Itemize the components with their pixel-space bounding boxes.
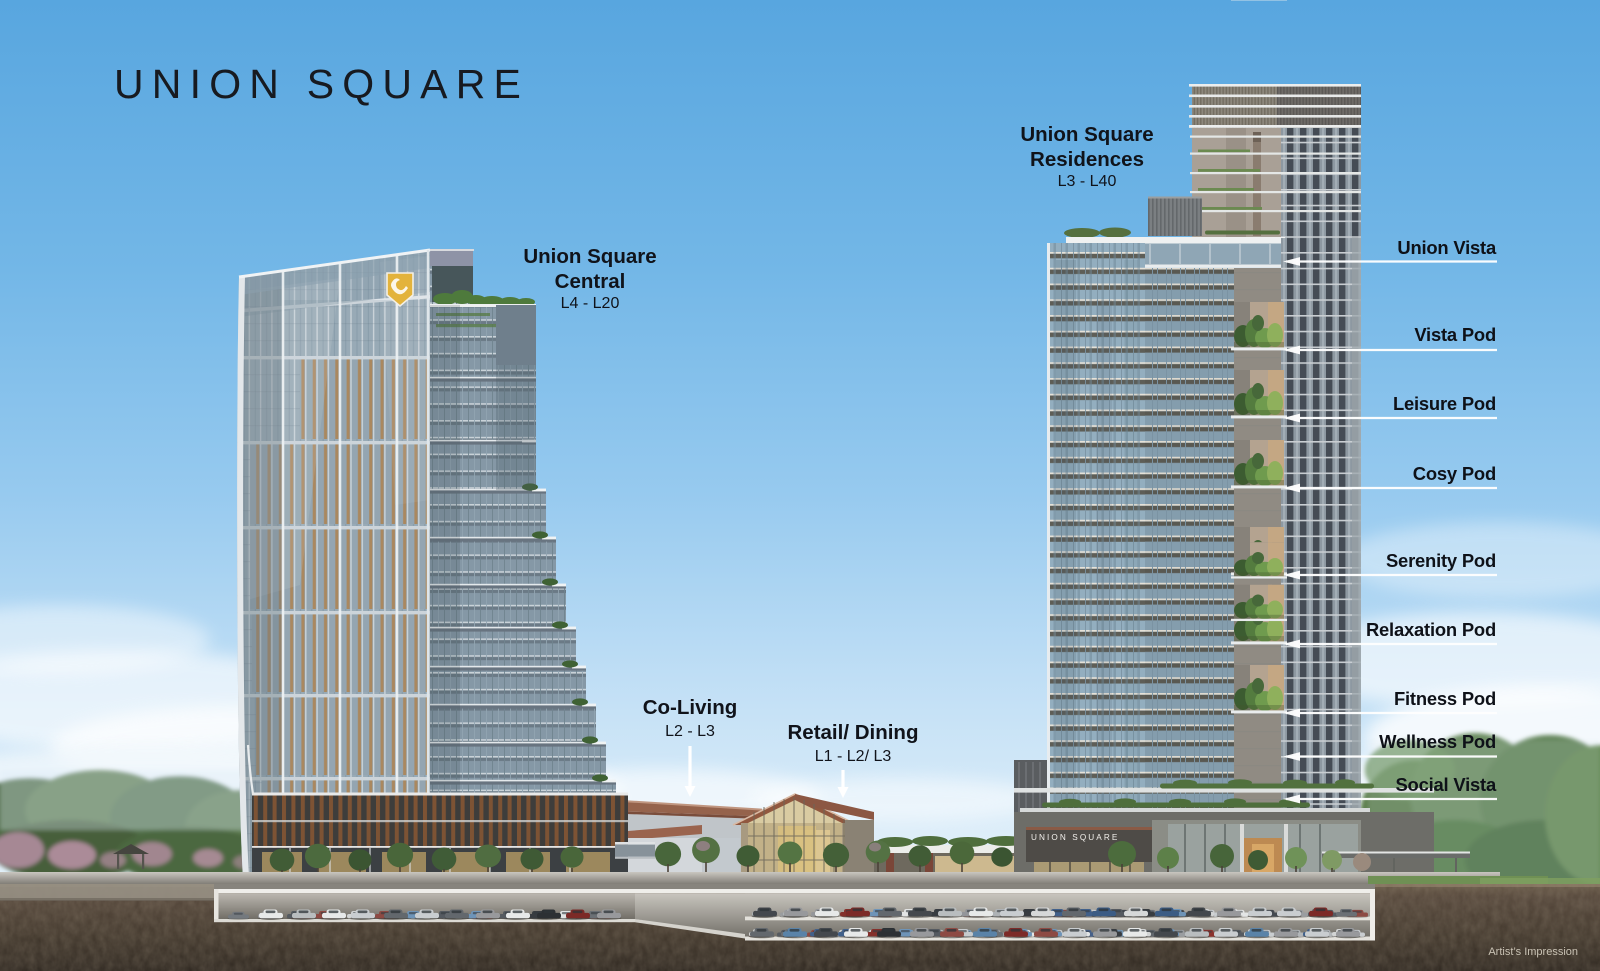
svg-text:UNION SQUARE: UNION SQUARE [1031,833,1119,842]
svg-text:Leisure Pod: Leisure Pod [1393,393,1496,414]
svg-text:Serenity Pod: Serenity Pod [1386,550,1496,571]
svg-text:L2 - L3: L2 - L3 [665,723,715,740]
svg-text:Residences: Residences [1030,148,1144,171]
svg-text:Wellness Pod: Wellness Pod [1379,731,1496,752]
svg-text:Union Vista: Union Vista [1397,237,1497,258]
svg-text:Relaxation Pod: Relaxation Pod [1366,619,1496,640]
svg-text:Co-Living: Co-Living [643,696,738,719]
svg-text:UNION SQUARE: UNION SQUARE [114,61,529,107]
svg-text:Cosy Pod: Cosy Pod [1413,463,1496,484]
svg-text:Union Square: Union Square [523,245,656,268]
svg-text:Fitness Pod: Fitness Pod [1394,688,1496,709]
svg-text:Union Square: Union Square [1020,123,1153,146]
svg-text:L3 - L40: L3 - L40 [1058,173,1117,190]
svg-text:L1 - L2/ L3: L1 - L2/ L3 [815,748,892,765]
svg-text:L4 - L20: L4 - L20 [561,295,620,312]
svg-text:Central: Central [555,270,626,293]
svg-text:Vista Pod: Vista Pod [1414,324,1496,345]
svg-text:Social Vista: Social Vista [1395,774,1496,795]
svg-text:Artist’s Impression: Artist’s Impression [1488,946,1578,958]
svg-text:Retail/ Dining: Retail/ Dining [788,721,919,744]
